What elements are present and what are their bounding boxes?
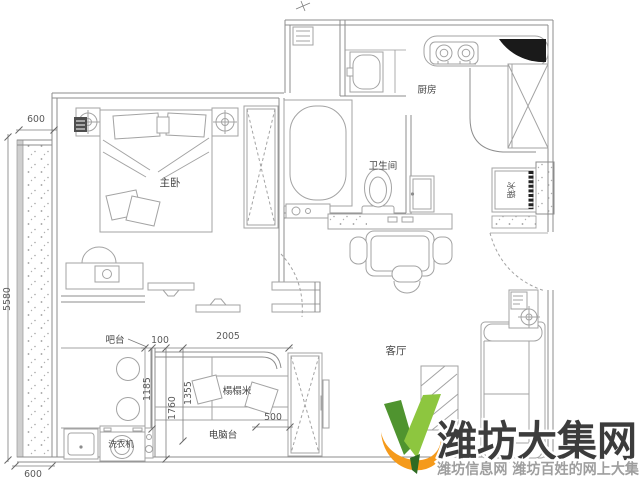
- dim-bar-length: 1185: [142, 377, 153, 401]
- watermark-tagline-text: 潍坊信息网 潍坊百姓的网上大集: [437, 460, 639, 478]
- balcony: [17, 140, 52, 457]
- dim-left-height: 5580: [2, 287, 13, 311]
- door-pocket-bar-bottom: [272, 304, 320, 312]
- dim-balcony-top: 600: [27, 114, 45, 125]
- laundry-sink: [64, 429, 98, 459]
- bar-stool-icon: [117, 358, 140, 381]
- dim-tatami-bed: 1355: [183, 381, 194, 405]
- room-label-living-room: 客厅: [386, 344, 407, 357]
- dim-tatami-width: 2005: [216, 331, 240, 342]
- faucet-icon: [347, 68, 353, 76]
- balcony-outer-wall: [17, 140, 23, 457]
- door-pocket-bar-top: [272, 282, 320, 290]
- cushion-icon: [192, 375, 222, 404]
- washbasin: [347, 52, 383, 92]
- panel-handle-icon: [163, 290, 179, 296]
- watermark-brand-text: 潍坊大集网: [437, 417, 637, 466]
- balcony-floor-stipple: [24, 144, 52, 456]
- dim-wall-gap: 100: [151, 335, 169, 346]
- sliding-partition: [148, 283, 240, 312]
- dining-area: [281, 214, 452, 317]
- desk-chair-icon: [82, 247, 116, 263]
- bar-counter: [61, 348, 145, 428]
- dining-chair-icon: [392, 266, 422, 293]
- bathtub: [284, 100, 352, 218]
- pillow-icon: [166, 113, 206, 137]
- sliding-panel-icon: [148, 283, 194, 290]
- bar-stool-icon: [117, 398, 140, 421]
- fridge-label: 冰箱: [505, 181, 516, 199]
- master-bedroom: 主卧: [66, 106, 278, 289]
- kitchen: 冰箱 厨房: [417, 36, 548, 228]
- tatami-room: 榻榻米 电脑台: [155, 353, 329, 456]
- room-label-bathroom: 卫生间: [369, 160, 398, 172]
- top-tick-mark: [296, 1, 310, 11]
- dim-cabinet: 500: [264, 412, 282, 423]
- room-label-tatami: 榻榻米: [223, 385, 252, 397]
- shower-fixture-icon: [293, 27, 313, 45]
- room-label-master-bedroom: 主卧: [160, 176, 181, 189]
- floor-plan-page: 主卧 卫生间: [0, 0, 640, 489]
- shelf: [492, 216, 536, 228]
- floor-plan: 主卧 卫生间: [0, 0, 640, 489]
- double-bed: [100, 110, 212, 232]
- wardrobe: [244, 106, 278, 228]
- dining-chair-icon: [350, 237, 367, 264]
- toilet: [362, 169, 394, 219]
- bar-laundry: 吧台 洗衣机: [61, 334, 153, 461]
- room-label-kitchen: 厨房: [417, 84, 436, 96]
- bar-counter-label: 吧台: [105, 334, 124, 346]
- computer-desk-label: 电脑台: [209, 429, 238, 441]
- pillow-icon: [113, 113, 160, 139]
- bathroom-door-leaf: [410, 176, 434, 212]
- nightstand-clock-icon: [74, 117, 87, 132]
- wall-pier: [536, 162, 554, 214]
- side-table: [509, 290, 540, 328]
- dim-tatami-height: 1760: [167, 396, 178, 420]
- panel-handle-icon: [210, 299, 226, 305]
- cushion-icon: [126, 196, 160, 226]
- dining-chair-icon: [433, 237, 452, 264]
- tatami-top-wall: [155, 352, 281, 369]
- tall-cabinet: [508, 64, 548, 148]
- sideboard: [328, 214, 452, 229]
- dim-balcony-bottom: 600: [24, 469, 42, 480]
- sliding-panel-icon: [196, 305, 240, 312]
- washing-machine-label: 洗衣机: [108, 439, 134, 450]
- fridge: 冰箱: [492, 168, 536, 212]
- entry-door-swing-arc: [490, 233, 545, 291]
- tatami-cabinet: [288, 353, 322, 456]
- walls: [17, 20, 554, 462]
- dressing-desk: [66, 247, 143, 289]
